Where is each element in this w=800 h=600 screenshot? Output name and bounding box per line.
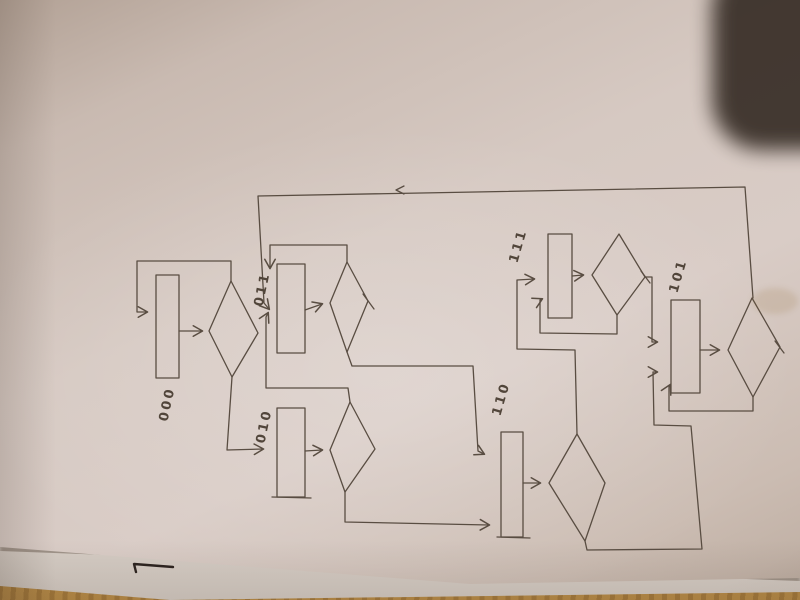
- state-box-101: [671, 300, 700, 393]
- edge-110-to-111: [517, 279, 577, 434]
- overshoot-011-right-vertex: [363, 294, 374, 309]
- decision-diamond-111: [592, 234, 645, 315]
- state-box-111: [548, 234, 572, 318]
- edge-010-to-110: [345, 492, 489, 525]
- state-label-111: 111: [507, 227, 531, 264]
- edge-111-to-decision: [572, 275, 583, 276]
- state-label-000: 000: [157, 386, 179, 423]
- edge-101-self-loop: [669, 385, 753, 411]
- state-label-110: 110: [490, 380, 514, 417]
- dark-object-corner: [712, 0, 800, 150]
- edge-011-to-110: [347, 352, 484, 454]
- state-box-010: [277, 408, 305, 497]
- decision-diamond-010: [330, 402, 375, 492]
- decision-diamond-000: [209, 281, 258, 377]
- decision-diamond-110: [549, 434, 605, 541]
- edge-010-to-011: [266, 313, 350, 402]
- state-box-110: [501, 432, 523, 537]
- decision-diamond-011: [330, 262, 368, 352]
- state-box-011: [277, 264, 305, 353]
- edge-111-to-101: [645, 277, 657, 342]
- state-label-010: 010: [254, 408, 276, 445]
- edge-000-self-loop: [137, 261, 231, 312]
- state-label-011: 011: [252, 271, 274, 308]
- paper-stain: [752, 288, 798, 314]
- state-label-101: 101: [667, 257, 691, 294]
- edge-111-self-loop: [540, 299, 617, 334]
- flowchart-root: 000011010110111101: [134, 186, 784, 572]
- edge-110-to-101: [585, 372, 702, 550]
- edge-010-to-decision: [305, 450, 322, 451]
- pen-mark-bottom-left: [134, 564, 173, 572]
- edge-011-to-decision: [305, 304, 322, 310]
- state-box-000: [156, 275, 179, 378]
- flowchart-svg: 000011010110111101: [0, 0, 800, 600]
